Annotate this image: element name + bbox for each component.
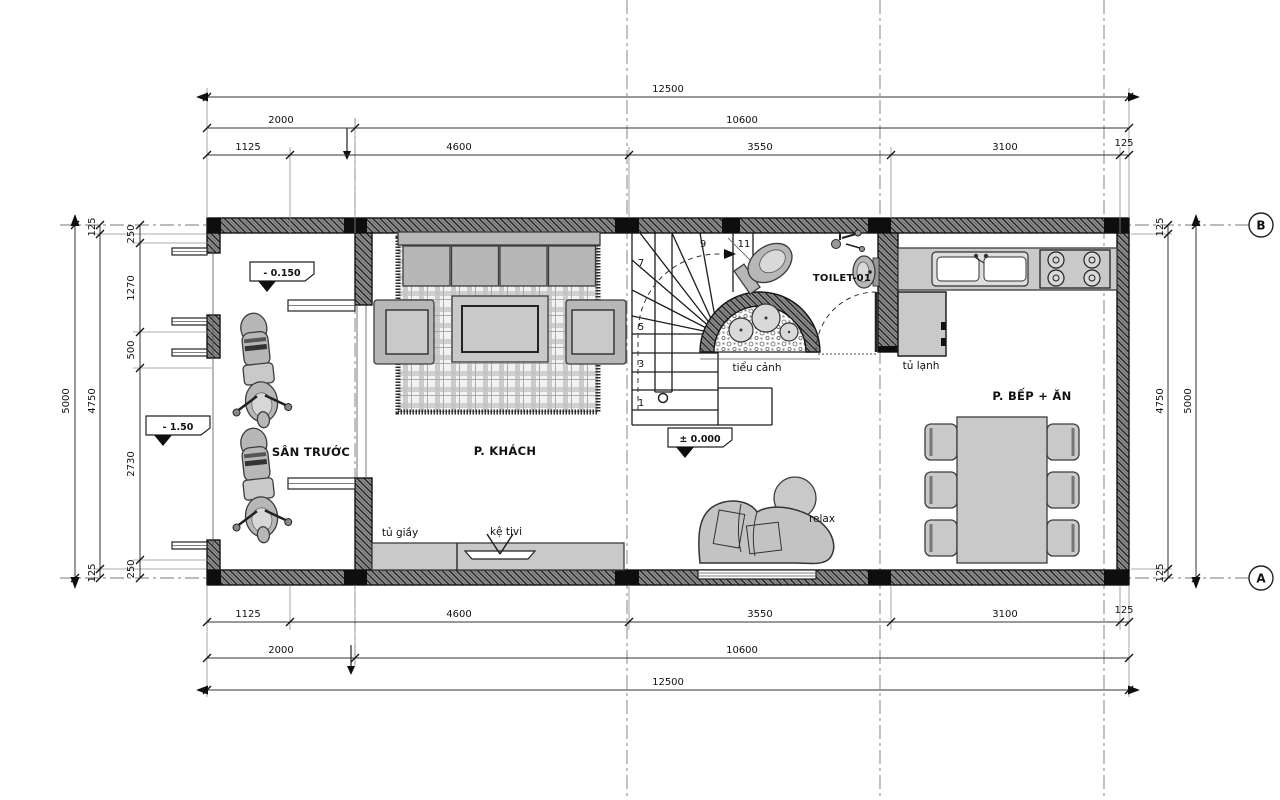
stair-step-number: 11 <box>738 239 751 250</box>
dim-segment: 4600 <box>446 609 471 620</box>
label-shoe-cabinet: tủ giầy <box>382 527 418 539</box>
front-yard: - 0.150 SÂN TRƯỚC <box>223 262 355 546</box>
room-label-living: P. KHÁCH <box>474 443 537 458</box>
dim-segment: 2730 <box>126 451 137 476</box>
right-wall <box>1117 233 1129 570</box>
left-boundary-wall <box>207 315 220 358</box>
dim-segment: 2000 <box>268 115 293 126</box>
grid-bubble-a-label: A <box>1256 572 1266 586</box>
label-mini-garden: tiểu cảnh <box>732 361 781 374</box>
armchair-left <box>374 300 434 364</box>
dim-segment: 125 <box>1155 217 1166 236</box>
stair-step-number: 5 <box>638 322 644 333</box>
dim-segment: 4750 <box>1155 388 1166 413</box>
grid-bubbles: B A <box>1249 213 1273 590</box>
dim-segment: 3550 <box>747 142 772 153</box>
dim-segment: 3550 <box>747 609 772 620</box>
armchair-right <box>566 300 626 364</box>
fridge-icon <box>898 292 946 356</box>
left-boundary-wall <box>207 540 220 570</box>
dining-table-set <box>925 417 1079 563</box>
floor-plan-canvas: - 0.150 SÂN TRƯỚC - 1.50 <box>0 0 1280 800</box>
coffee-table <box>452 296 548 362</box>
dim-segment: 4600 <box>446 142 471 153</box>
dim-segment: 125 <box>87 217 98 236</box>
dimensions-top: 12500 2000 10600 1125 4600 3550 3100 125 <box>196 84 1140 159</box>
dim-segment: 125 <box>1114 138 1133 149</box>
handrail-post <box>659 394 668 403</box>
tv-icon <box>465 551 535 559</box>
dim-total-depth: 5000 <box>1183 388 1194 413</box>
stair-step-number: 1 <box>638 398 644 409</box>
dim-total-width: 12500 <box>652 84 684 95</box>
level-value: - 1.50 <box>163 422 194 433</box>
dim-segment: 125 <box>87 563 98 582</box>
dim-segment: 500 <box>126 340 137 359</box>
dim-segment: 3100 <box>992 609 1017 620</box>
dim-segment: 250 <box>126 559 137 578</box>
room-label-kitchen: P. BẾP + ĂN <box>992 387 1071 403</box>
toilet-door <box>816 292 876 354</box>
dim-segment: 2000 <box>268 645 293 656</box>
dimensions-left: 5000 125 4750 125 250 1270 500 2730 250 <box>61 214 144 589</box>
relax-corner: relax <box>699 477 835 564</box>
stove-icon <box>1040 250 1110 288</box>
dim-segment: 125 <box>1114 605 1133 616</box>
label-relax: relax <box>809 513 835 525</box>
stair-step-number: 9 <box>700 239 706 250</box>
dim-segment: 10600 <box>726 115 758 126</box>
dimensions-right: 125 4750 125 5000 <box>1155 214 1201 589</box>
dim-total-depth: 5000 <box>61 388 72 413</box>
level-marker-front-yard: - 0.150 <box>250 262 314 292</box>
dim-segment: 125 <box>1155 563 1166 582</box>
sofa <box>398 232 600 286</box>
dim-segment: 10600 <box>726 645 758 656</box>
floor-plan-drawing: - 0.150 SÂN TRƯỚC - 1.50 <box>0 0 1280 800</box>
stair-step-number: 7 <box>638 258 644 269</box>
label-fridge: tủ lạnh <box>903 360 940 372</box>
room-label-toilet: TOILET-01 <box>813 273 871 284</box>
level-value: - 0.150 <box>263 268 301 279</box>
front-partition-upper <box>355 233 372 305</box>
level-marker-street: - 1.50 <box>146 416 210 446</box>
living-room: P. KHÁCH tủ giầy kệ tivi <box>372 232 626 570</box>
dim-segment: 1270 <box>126 275 137 300</box>
gate-leaves <box>172 248 207 549</box>
label-tv-shelf: kệ tivi <box>490 526 522 538</box>
dim-segment: 3100 <box>992 142 1017 153</box>
sink-icon <box>932 252 1028 286</box>
dim-segment: 1125 <box>235 609 260 620</box>
dim-segment: 1125 <box>235 142 260 153</box>
kitchen-dining: tủ lạnh P. BẾP + ĂN <box>898 248 1117 563</box>
dim-segment: 250 <box>126 224 137 243</box>
bottom-window <box>698 570 816 579</box>
stair-step-number: 3 <box>638 359 644 370</box>
tv-cabinet <box>372 534 624 570</box>
dining-table <box>957 417 1047 563</box>
level-value: ± 0.000 <box>679 434 721 445</box>
dim-segment: 4750 <box>87 388 98 413</box>
room-label-front-yard: SÂN TRƯỚC <box>272 444 350 459</box>
front-partition-lower <box>355 478 372 570</box>
level-marker-ground: ± 0.000 <box>668 428 732 458</box>
dimensions-bottom: 1125 4600 3550 3100 125 2000 10600 12500 <box>196 605 1140 695</box>
grid-bubble-b-label: B <box>1256 219 1265 233</box>
dim-total-width: 12500 <box>652 677 684 688</box>
toilet-kitchen-wall <box>878 233 898 352</box>
entry-step <box>288 300 355 489</box>
